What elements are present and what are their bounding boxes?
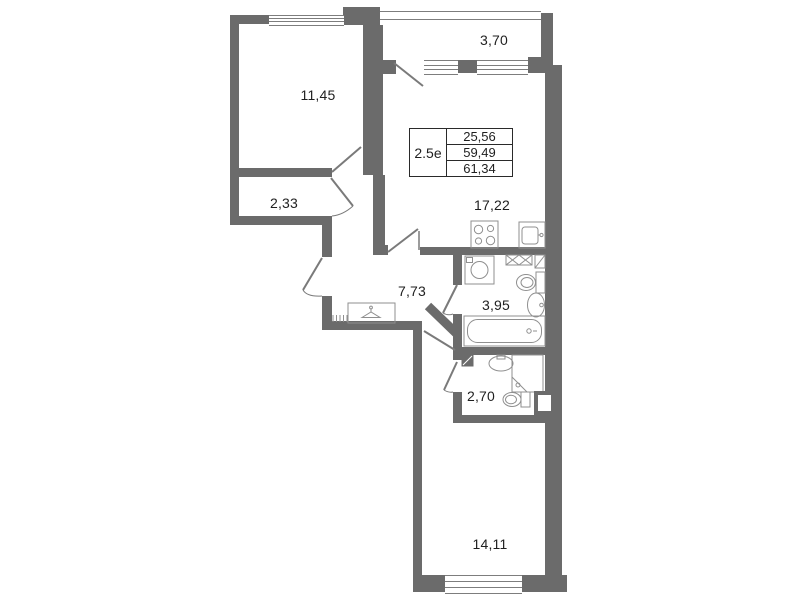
wall-storage-bottom	[230, 216, 330, 225]
washing-machine-icon	[465, 256, 494, 284]
door-bedroom	[332, 147, 361, 172]
wall-bottom-right-block	[522, 575, 567, 592]
wall-kitchen-left	[373, 175, 385, 248]
balcony-railing	[380, 11, 541, 20]
door-kitchen	[388, 229, 419, 252]
wall-balcony-pillar	[458, 60, 477, 73]
wash-basin-icon	[528, 293, 545, 317]
wall-corridor-left	[413, 321, 422, 582]
wc-basin-icon	[489, 355, 513, 371]
stove-icon	[471, 221, 498, 248]
wall-left-outer	[230, 15, 239, 225]
wall-bedroom-kitchen-divider	[363, 25, 383, 175]
room-label-bathroom: 3,95	[482, 297, 510, 313]
room-label-kitchen-living: 17,22	[474, 197, 510, 213]
wall-balcony-door-block	[380, 60, 396, 74]
wall-hall-bottom	[322, 321, 422, 330]
door-storage	[331, 178, 353, 216]
area-table: 2.5е 25,56 59,49 61,34	[409, 128, 513, 177]
wc-toilet-icon	[503, 392, 530, 407]
area-table-floor-area: 59,49	[447, 145, 512, 161]
door-wc	[444, 362, 457, 392]
room-label-hallway: 7,73	[398, 283, 426, 299]
toilet-icon	[517, 272, 546, 293]
wall-hall-left-upper	[322, 216, 332, 257]
kitchen-sink-icon	[519, 222, 545, 248]
wall-top-center-block	[343, 7, 380, 25]
window-balcony-left	[424, 60, 458, 75]
room-label-balcony: 3,70	[480, 32, 508, 48]
wall-bathroom-left-c	[453, 392, 462, 423]
room-label-storage: 2,33	[270, 195, 298, 211]
door-balcony	[394, 63, 423, 86]
wall-wc-bottom	[462, 415, 562, 423]
towel-radiator-icon	[506, 255, 532, 265]
wall-top-left	[230, 15, 269, 24]
window-balcony-right	[477, 60, 528, 75]
wall-bathroom-wc-divider	[453, 347, 545, 355]
wall-bottom-left-block	[413, 575, 445, 592]
room-label-bedroom: 11,45	[301, 87, 336, 103]
wall-storage-top	[230, 168, 332, 177]
door-corridor	[424, 331, 455, 350]
water-heater-icon	[535, 255, 545, 268]
door-bathroom	[443, 285, 457, 315]
window-bedroom	[269, 15, 344, 26]
room-label-wc: 2,70	[467, 388, 495, 404]
floor-plan: 11,45 3,70 17,22 2,33 7,73 3,95 2,70 14,…	[0, 0, 799, 600]
door-entrance	[303, 258, 322, 296]
wardrobe-icon	[333, 303, 395, 323]
vent-shaft-icon	[462, 355, 473, 366]
window-bedroom-2	[445, 575, 522, 594]
shower-icon	[512, 355, 543, 392]
wall-right-balcony	[541, 13, 553, 70]
wall-kitchen-left-foot	[373, 245, 388, 255]
wall-bathroom-left-a	[453, 255, 462, 285]
area-table-living-area: 25,56	[447, 129, 512, 145]
room-label-bedroom-2: 14,11	[473, 536, 508, 552]
wall-right-outer	[545, 65, 562, 582]
wall-kitchen-bottom	[420, 247, 546, 255]
bathtub-icon	[464, 316, 545, 346]
area-table-type: 2.5е	[410, 129, 447, 176]
plan-linework	[0, 0, 799, 600]
area-table-total-area: 61,34	[447, 161, 512, 176]
